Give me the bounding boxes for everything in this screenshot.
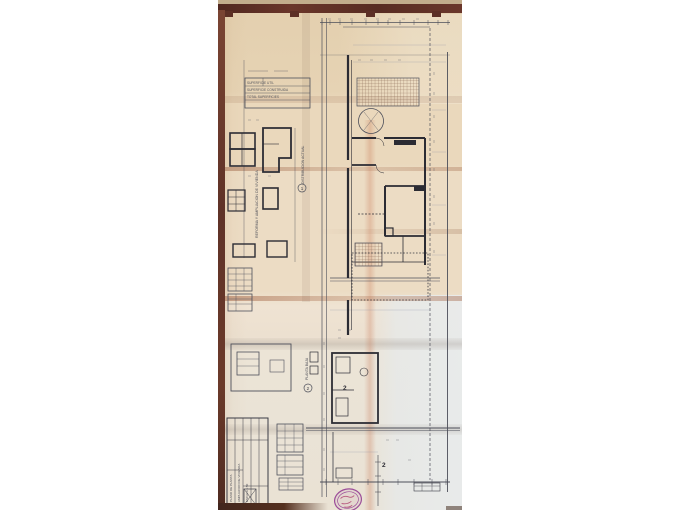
table-edge-bottom [218, 503, 328, 510]
mid-margin-note: DISTRIBUCION ACTUAL [301, 145, 305, 184]
lower-room [332, 353, 378, 423]
floorplan-linework: SUPERFICIE UTIL SUPERFICIE CONSTRUIDA TO… [218, 0, 462, 510]
room-number-mid: 2 [343, 385, 347, 392]
table-edge-dark [218, 4, 462, 13]
legend-row-2: SUPERFICIE CONSTRUIDA [247, 88, 289, 92]
legend-row-1: SUPERFICIE UTIL [247, 81, 274, 85]
table-edge-bottom-right [446, 506, 462, 510]
blueprint-photo: SUPERFICIE UTIL SUPERFICIE CONSTRUIDA TO… [218, 0, 462, 510]
lower-margin-note: PLANTA BAJA [305, 357, 309, 380]
small-tables [228, 268, 303, 490]
title-block-line-3: ESCALA 1:50 [245, 483, 249, 502]
table-edge-notch [290, 11, 299, 17]
table-edge-notch [366, 11, 375, 17]
circle-mark-upper-number: 1 [301, 186, 304, 191]
table-edge-notch [224, 11, 233, 17]
plan-text: SUPERFICIE UTIL SUPERFICIE CONSTRUIDA TO… [229, 81, 386, 502]
approval-stamp-icon [333, 486, 364, 510]
legend-row-3: TOTAL SUPERFICIES [247, 95, 279, 99]
table-edge-left [218, 10, 225, 510]
table-edge-notch [432, 11, 441, 17]
room-number-bottom: 2 [382, 462, 386, 469]
circle-mark-lower-number: 2 [307, 386, 310, 391]
title-block-line-2: AMPLIACION DE VIVIENDA [237, 464, 241, 502]
title-block-line-1: PLANO DE PLANTA [229, 475, 233, 502]
left-margin-note: REFORMA Y AMPLIACION DE VIVIENDA [255, 170, 259, 238]
screenshot: SUPERFICIE UTIL SUPERFICIE CONSTRUIDA TO… [0, 0, 680, 510]
